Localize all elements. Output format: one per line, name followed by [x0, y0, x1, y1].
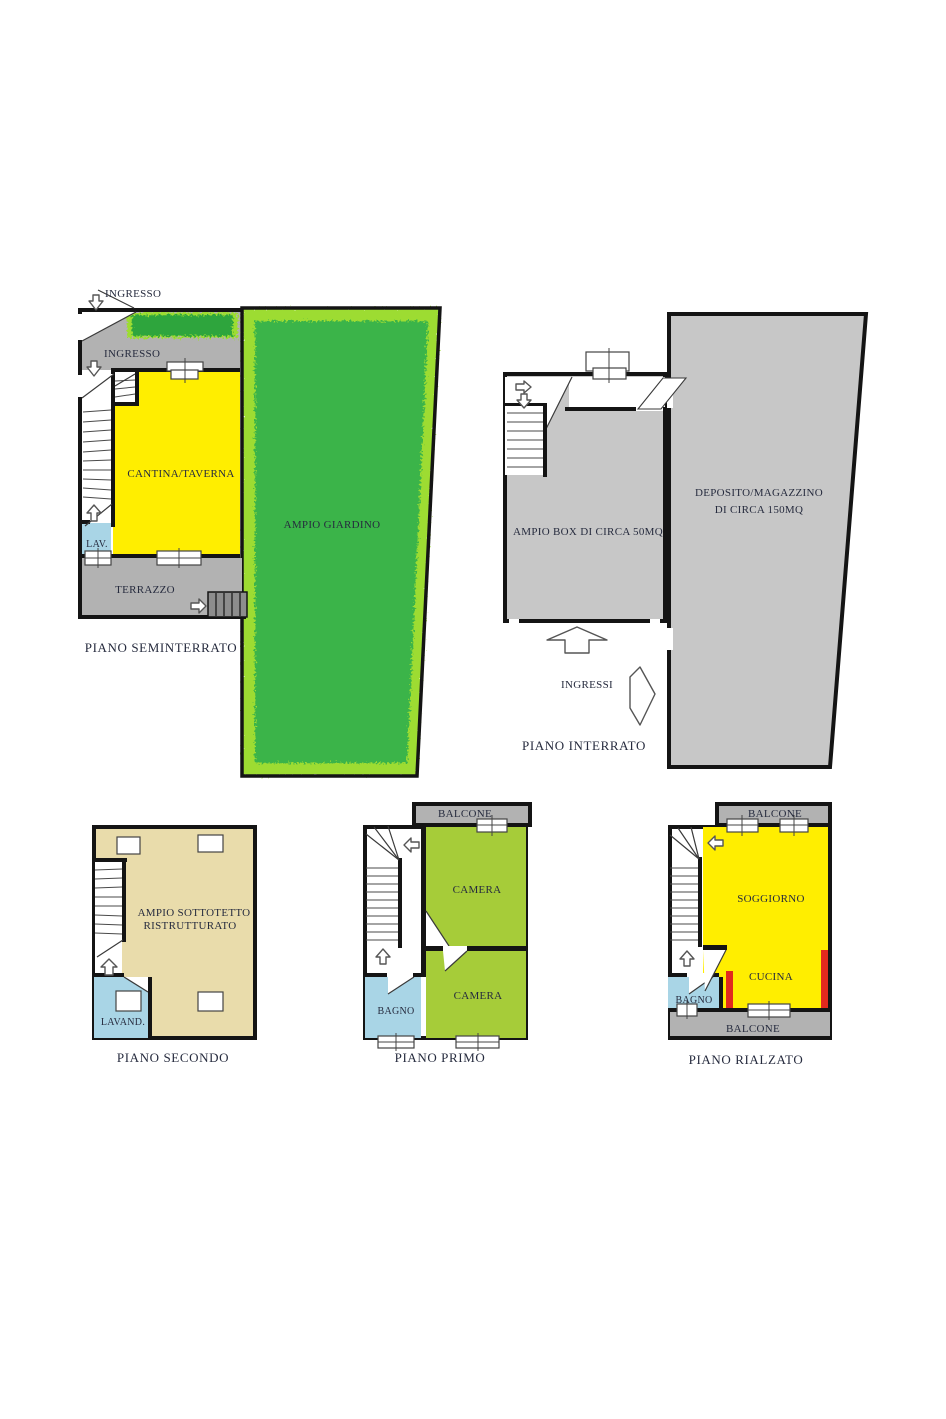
ingressi-label: INGRESSI — [561, 679, 613, 691]
camera-nord-label: CAMERA — [453, 884, 502, 896]
red-pilaster-left — [726, 971, 733, 1008]
door-gap-entry2 — [78, 375, 82, 397]
floor-plan-secondo: AMPIO SOTTOTETTO RISTRUTTURATO LAVAND. P… — [92, 827, 255, 1065]
floor-plan-interrato: AMPIO BOX DI CIRCA 50MQ DEPOSITO/MAGAZZI… — [505, 314, 866, 767]
wall-stair-stringer — [111, 368, 115, 527]
floor-plan-primo: BALCONE CAMERA CAMERA BAGNO PIANO PRIMO — [365, 804, 530, 1065]
door-gap-deposito-lower — [665, 628, 673, 650]
stairs-area — [95, 862, 122, 940]
cucina-label: CUCINA — [749, 971, 793, 983]
wall-lavand-right — [148, 977, 152, 1040]
skylight-icon — [198, 835, 223, 852]
balcone-rialzato-top-label: BALCONE — [748, 808, 802, 820]
camera-sud-label: CAMERA — [454, 990, 503, 1002]
door-gap-bagno — [387, 973, 413, 977]
room-deposito-magazzino — [669, 314, 866, 767]
skylight-icon — [117, 837, 140, 854]
lavanderia-label: LAVAND. — [101, 1017, 145, 1028]
secondo-title: PIANO SECONDO — [117, 1050, 229, 1065]
window-camera-sud-icon — [456, 1033, 499, 1051]
rialzato-title: PIANO RIALZATO — [689, 1052, 804, 1067]
window-vestibule-icon — [586, 348, 629, 383]
door-gap-box-right — [650, 619, 660, 623]
wall-stairs-camera — [421, 825, 426, 977]
red-pilaster-right — [821, 950, 828, 1008]
floorplan-canvas: AMPIO GIARDINO — [0, 0, 946, 1419]
door-gap-box-left — [509, 619, 519, 623]
interrato-title: PIANO INTERRATO — [522, 738, 646, 753]
bagno-primo-label: BAGNO — [377, 1006, 414, 1017]
wall-left — [78, 308, 82, 619]
ingresso-top-label: INGRESSO — [105, 288, 161, 300]
floor-plan-seminterrato: INGRESSO INGRESSO CANTINA/TAVERNA LAV. T… — [78, 288, 247, 655]
bagno-rialzato-label: BAGNO — [675, 995, 712, 1006]
hedge-strip — [132, 315, 233, 336]
winder-stair — [111, 372, 139, 406]
wall-cucina-stub — [703, 945, 727, 950]
garden-steps — [208, 592, 247, 617]
wall-winder-right — [135, 372, 139, 406]
door-gap-camere — [443, 946, 467, 951]
garden-label: AMPIO GIARDINO — [284, 519, 381, 531]
garden-lawn — [255, 321, 428, 763]
window-cantina-terrazzo-icon — [157, 548, 201, 568]
wall-winder-bottom — [111, 402, 139, 406]
deposito-label-line2: DI CIRCA 150MQ — [715, 504, 804, 516]
sottotetto-label-line2: RISTRUTTURATO — [144, 920, 237, 932]
arrow-right-icon — [630, 667, 655, 725]
soggiorno-label: SOGGIORNO — [737, 893, 804, 905]
floorplan-sheet: AMPIO GIARDINO — [0, 0, 946, 1419]
balcone-rialzato-bottom-label: BALCONE — [726, 1023, 780, 1035]
terrazzo-label: TERRAZZO — [115, 584, 175, 596]
wall-bagno-right — [719, 977, 723, 1010]
door-gap-entry1 — [78, 314, 82, 340]
balcone-primo-label: BALCONE — [438, 808, 492, 820]
box-label: AMPIO BOX DI CIRCA 50MQ — [513, 526, 663, 538]
wall-between-camere — [421, 946, 526, 951]
sottotetto-label-line1: AMPIO SOTTOTETTO — [138, 907, 251, 919]
skylight-icon — [116, 991, 141, 1011]
wall-top — [78, 308, 242, 312]
primo-title: PIANO PRIMO — [395, 1050, 486, 1065]
window-cantina-top-icon — [167, 358, 203, 383]
window-cucina-icon — [748, 1001, 790, 1020]
skylight-icon — [198, 992, 223, 1011]
seminterrato-title: PIANO SEMINTERRATO — [85, 640, 238, 655]
floor-plan-rialzato: BALCONE SOGGIORNO CUCINA BAGNO BALCONE P… — [668, 804, 832, 1067]
wall-stairs-top — [92, 858, 127, 862]
lav-label: LAV. — [86, 539, 108, 550]
cantina-label: CANTINA/TAVERNA — [127, 468, 234, 480]
wall-stairs-stringer — [122, 858, 126, 942]
garden-area: AMPIO GIARDINO — [242, 308, 440, 776]
window-lav-terrazzo-icon — [85, 548, 111, 568]
window-bagno-primo-icon — [378, 1033, 414, 1051]
deposito-label-line1: DEPOSITO/MAGAZZINO — [695, 487, 823, 499]
ingresso-inner-label: INGRESSO — [104, 348, 160, 360]
arrow-down-icon — [89, 295, 103, 310]
arrow-up-icon — [547, 627, 607, 653]
